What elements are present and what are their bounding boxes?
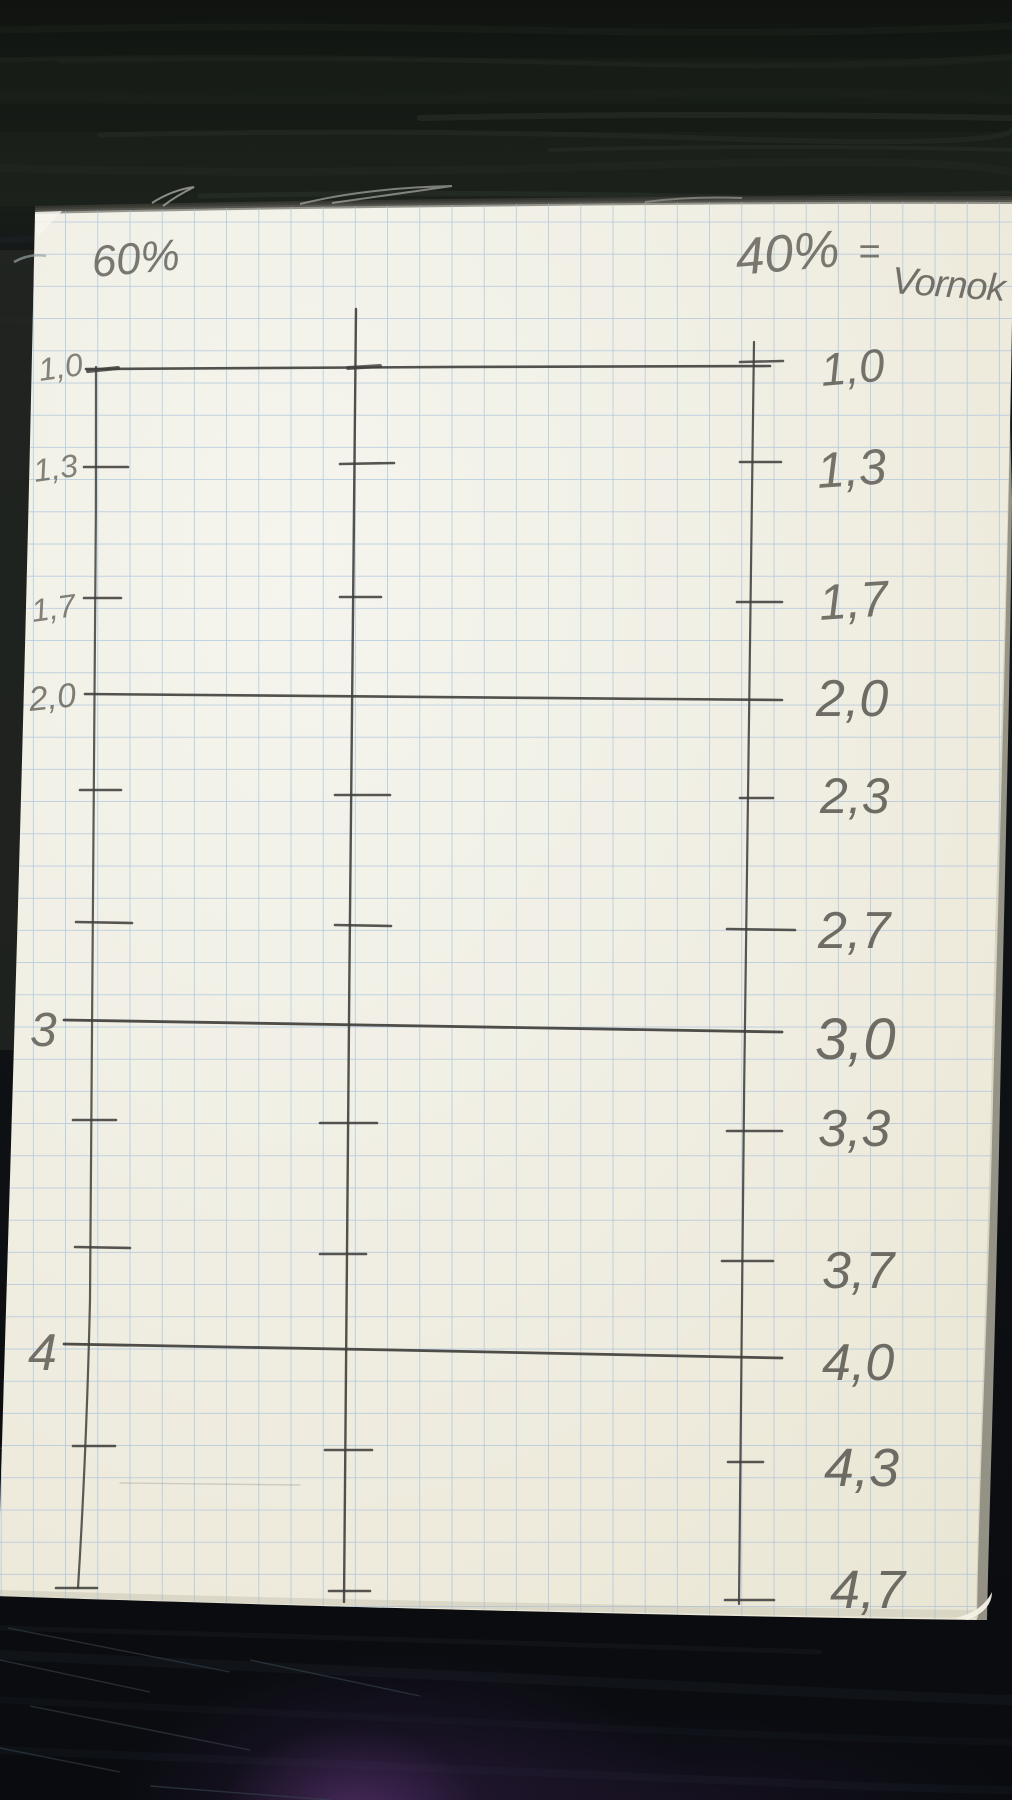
svg-text:1,0: 1,0 — [36, 346, 85, 388]
svg-text:4,3: 4,3 — [824, 1438, 899, 1498]
svg-text:3,7: 3,7 — [822, 1242, 896, 1300]
svg-text:60%: 60% — [90, 230, 182, 286]
svg-text:3,0: 3,0 — [815, 1007, 896, 1072]
svg-text:2,3: 2,3 — [819, 768, 890, 824]
svg-text:4: 4 — [28, 1324, 57, 1382]
svg-text:1,7: 1,7 — [817, 570, 892, 631]
svg-text:4,0: 4,0 — [822, 1334, 894, 1392]
svg-text:40%: 40% — [733, 220, 842, 287]
svg-text:1,3: 1,3 — [31, 447, 80, 489]
svg-text:3: 3 — [30, 1004, 57, 1057]
svg-text:Vornok: Vornok — [890, 260, 1009, 310]
svg-text:1,0: 1,0 — [818, 339, 887, 396]
svg-text:1,7: 1,7 — [29, 587, 79, 629]
svg-text:3,3: 3,3 — [818, 1100, 890, 1158]
svg-text:2,0: 2,0 — [815, 670, 888, 728]
svg-text:=: = — [858, 231, 880, 273]
svg-text:1,3: 1,3 — [815, 438, 888, 499]
svg-text:2,0: 2,0 — [26, 676, 78, 719]
svg-text:2,7: 2,7 — [817, 902, 892, 960]
svg-text:4,7: 4,7 — [830, 1560, 907, 1620]
